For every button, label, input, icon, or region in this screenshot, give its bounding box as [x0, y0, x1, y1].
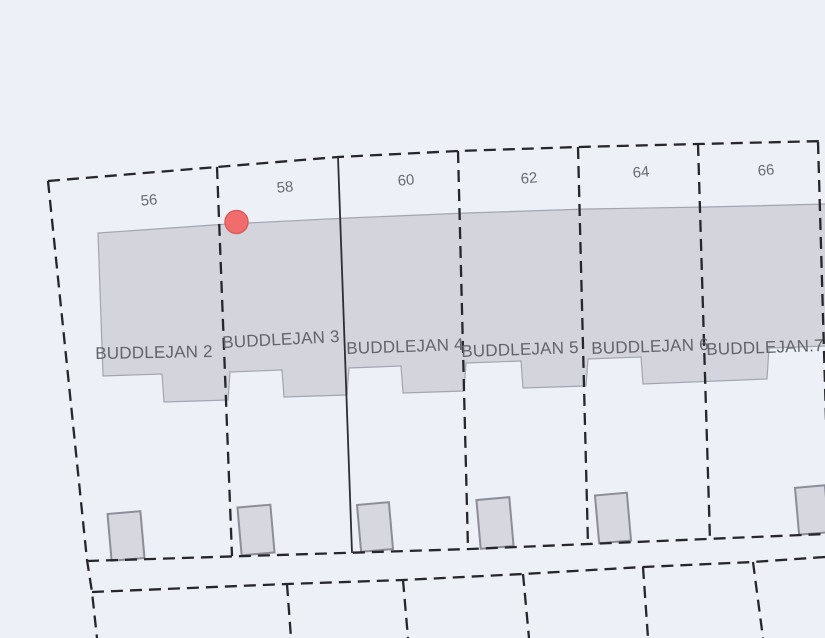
shed-footprint	[108, 511, 145, 561]
shed-footprint	[357, 502, 393, 552]
lower-row-boundary	[403, 580, 408, 638]
house-number: 58	[276, 178, 294, 196]
top-boundary-line	[48, 141, 825, 181]
parcel-map-svg[interactable]: 56 58 60 62 64 66 BUDDLEJAN 2 BUDDLEJAN …	[0, 0, 825, 638]
left-boundary-line	[48, 181, 97, 638]
rear-path-upper-line	[87, 534, 825, 561]
shed-footprint	[595, 493, 631, 544]
unit-label: BUDDLEJAN.7	[706, 336, 824, 359]
lower-row-boundary	[523, 574, 529, 638]
rear-path-lower-line	[92, 557, 825, 592]
shed-footprint	[795, 485, 825, 534]
house-number: 62	[520, 169, 538, 187]
shed-footprint	[476, 497, 513, 549]
unit-label: BUDDLEJAN 2	[95, 342, 213, 363]
house-number: 60	[397, 171, 415, 189]
lower-row-boundary	[643, 567, 648, 638]
map-canvas[interactable]: 56 58 60 62 64 66 BUDDLEJAN 2 BUDDLEJAN …	[0, 0, 825, 638]
house-number: 66	[757, 161, 775, 179]
house-number: 56	[140, 191, 158, 209]
house-number-labels: 56 58 60 62 64 66	[140, 161, 775, 209]
lower-row-boundary	[287, 584, 291, 638]
shed-footprint	[237, 505, 274, 556]
location-marker-icon[interactable]	[225, 211, 248, 234]
house-number: 64	[632, 163, 650, 181]
lower-row-boundary	[753, 562, 763, 638]
